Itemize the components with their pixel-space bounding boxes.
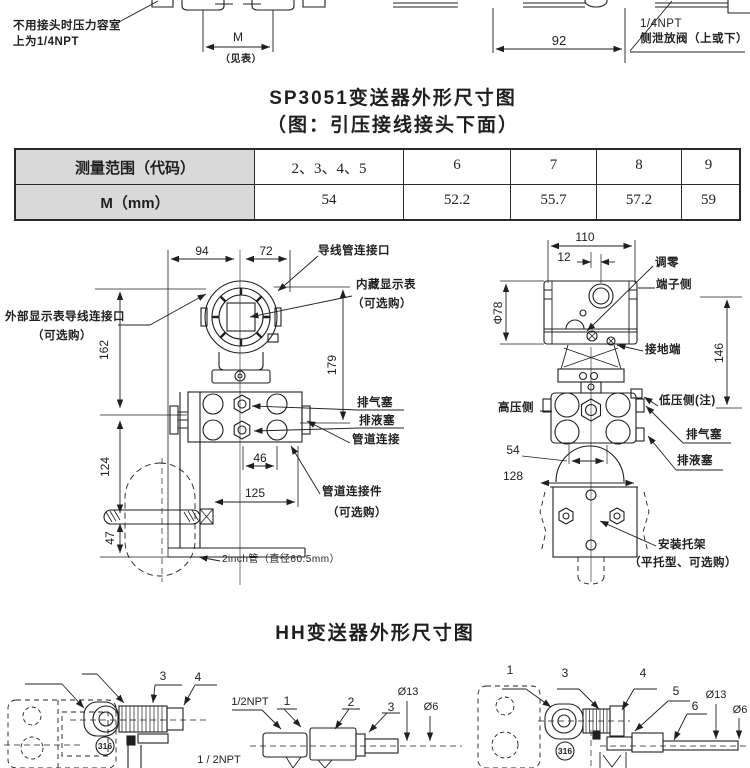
top-left-fragment <box>119 0 325 52</box>
hh-mid-callout-3: 3 <box>384 700 398 714</box>
dim-94: 94 <box>188 244 216 258</box>
hh-mid-dia13: Ø13 <box>394 686 422 698</box>
table-cell: 52.2 <box>404 185 511 219</box>
label-mounting-bracket: 安装托架 <box>658 539 706 552</box>
catalog-page: 不用接头时压力容室 上为1/4NPT M （见表） 92 1/4NPT 侧泄放阀… <box>0 0 750 768</box>
table-row: 测量范围（代码） 2、3、4、5 6 7 8 9 <box>16 150 739 184</box>
table-row: M（mm） 54 52.2 55.7 57.2 59 <box>16 184 739 219</box>
top-note-line1: 不用接头时压力容室 <box>13 20 121 33</box>
valve-note-line1: 1/4NPT <box>640 18 682 31</box>
hh-right-callout-1: 1 <box>503 663 517 677</box>
dim-54: 54 <box>500 443 526 457</box>
dim-110: 110 <box>570 230 600 244</box>
label-drain-plug-side: 排液塞 <box>677 455 713 468</box>
label-ground-terminal: 接地端 <box>645 344 681 357</box>
label-external-display-optional: （可选购） <box>32 330 92 343</box>
valve-note-line2: 侧泄放阀（上或下） <box>640 33 748 46</box>
dimension-table: 测量范围（代码） 2、3、4、5 6 7 8 9 M（mm） 54 52.2 5… <box>14 148 741 221</box>
dim-46: 46 <box>246 451 274 465</box>
hh-right-material-316: 316 <box>556 746 574 756</box>
dim-m-note: （见表） <box>220 54 262 66</box>
top-right-fragment <box>393 0 750 63</box>
dim-124: 124 <box>98 452 112 482</box>
hh-right-dia6: Ø6 <box>728 704 750 716</box>
dim-phi78: Φ78 <box>491 296 505 330</box>
table-cell: 59 <box>682 185 735 219</box>
label-low-pressure-side: 低压侧(注) <box>659 395 716 408</box>
hh-left-callout-4: 4 <box>191 670 205 684</box>
label-builtin-display: 内藏显示表 <box>356 279 416 292</box>
label-conduit-port: 导线管连接口 <box>318 245 390 258</box>
dim-125: 125 <box>237 486 273 500</box>
hh-mid-npt-label: 1/2NPT <box>228 696 272 708</box>
label-vent-plug-side: 排气塞 <box>686 429 722 442</box>
dim-92: 92 <box>544 33 574 48</box>
table-cell: 6 <box>404 150 511 184</box>
page-title: SP3051变送器外形尺寸图 <box>36 83 750 110</box>
top-note-line2: 上为1/4NPT <box>13 36 79 49</box>
label-zero-adjust: 调零 <box>655 257 679 270</box>
hh-left-npt-label: 1 / 2NPT <box>196 754 242 766</box>
page-subtitle: （图：引压接线接头下面） <box>36 110 750 137</box>
hh-right-callout-3: 3 <box>558 666 572 680</box>
table-cell: 54 <box>255 185 404 219</box>
label-pipe-fitting: 管道连接件 <box>322 486 382 499</box>
table-cell: 2、3、4、5 <box>255 150 404 184</box>
dim-128: 128 <box>497 469 529 483</box>
table-cell: 7 <box>511 150 597 184</box>
label-terminal-side: 端子侧 <box>656 279 692 292</box>
table-cell: 8 <box>597 150 682 184</box>
hh-mid-dia6: Ø6 <box>419 701 443 713</box>
table-cell: 55.7 <box>511 185 597 219</box>
hh-left-callout-3: 3 <box>156 669 170 683</box>
label-vent-plug: 排气塞 <box>357 397 393 410</box>
label-2inch-pipe: 2inch管（直径60.5mm） <box>222 554 340 566</box>
label-pipe-connection: 管道连接 <box>352 434 400 447</box>
dim-146: 146 <box>712 338 726 368</box>
label-mounting-bracket-optional: （平托型、可选购） <box>629 557 737 570</box>
hh-right-callout-4: 4 <box>636 666 650 680</box>
label-builtin-display-optional: （可选购） <box>352 298 412 311</box>
label-high-pressure-side: 高压侧 <box>498 402 534 415</box>
label-external-display-port: 外部显示表导线连接口 <box>5 311 125 324</box>
hh-right-callout-6: 6 <box>688 699 702 713</box>
hh-mid-callout-1: 1 <box>280 694 294 708</box>
hh-left-drawing <box>4 674 217 768</box>
dim-m-label: M <box>224 30 252 44</box>
table-header-m: M（mm） <box>16 185 255 219</box>
dim-72: 72 <box>252 244 280 258</box>
table-cell: 57.2 <box>597 185 682 219</box>
table-header-range: 测量范围（代码） <box>16 150 255 184</box>
hh-section-title: HH变送器外形尺寸图 <box>0 618 750 645</box>
table-cell: 9 <box>682 150 735 184</box>
hh-mid-callout-2: 2 <box>344 695 358 709</box>
dim-162: 162 <box>97 335 111 365</box>
label-pipe-fitting-optional: （可选购） <box>327 507 387 520</box>
label-drain-plug: 排液塞 <box>359 415 395 428</box>
dim-12: 12 <box>553 250 575 264</box>
hh-right-callout-5: 5 <box>669 684 683 698</box>
side-view-drawing <box>500 240 742 584</box>
dim-47: 47 <box>103 523 117 553</box>
hh-left-material-316: 316 <box>96 741 114 751</box>
hh-right-dia13: Ø13 <box>702 689 730 701</box>
dim-179: 179 <box>325 350 339 380</box>
